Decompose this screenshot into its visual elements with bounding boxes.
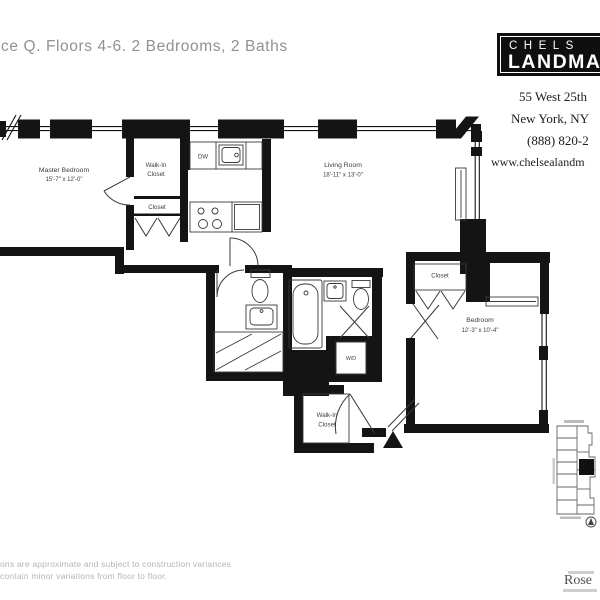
disclaimer-line-2: contain minor variations from floor to f… xyxy=(0,571,167,581)
brand-fineprint-bottom xyxy=(563,589,597,592)
stove-burners xyxy=(198,208,222,229)
refrigerator xyxy=(235,205,260,230)
floor-plan-drawing: Master Bedroom 15'-7" x 12'-0" Walk-In C… xyxy=(0,0,600,600)
room-dims-bedroom: 12'-3" x 10'-4" xyxy=(462,328,499,334)
disclaimer-line-1: ons are approximate and subject to const… xyxy=(0,559,231,569)
key-plan-street-label-top xyxy=(564,420,584,423)
label-walk-in-closet-2b: Closet xyxy=(318,422,336,429)
key-plan-street-label-left xyxy=(553,458,556,484)
key-plan-highlighted-unit xyxy=(579,459,594,475)
label-walk-in-closet-1b: Closet xyxy=(147,171,165,178)
room-dims-living-room: 18'-11" x 13'-0" xyxy=(323,173,363,179)
label-closet-2: Closet xyxy=(431,273,449,280)
key-plan-street-label-bottom xyxy=(560,517,581,520)
label-walk-in-closet-2a: Walk-In xyxy=(317,412,338,419)
brand-rose: Rose xyxy=(564,573,592,589)
label-dishwasher: DW xyxy=(198,155,208,161)
compass-icon xyxy=(586,517,596,527)
room-label-bedroom: Bedroom xyxy=(466,317,494,324)
label-walk-in-closet-1a: Walk-In xyxy=(146,162,167,169)
room-label-living-room: Living Room xyxy=(324,162,362,169)
room-label-master-bedroom: Master Bedroom xyxy=(39,167,90,174)
room-dims-master-bedroom: 15'-7" x 12'-0" xyxy=(46,177,83,183)
bath2-toilet xyxy=(352,281,370,288)
label-washer-dryer: W/D xyxy=(346,356,356,362)
label-closet-1: Closet xyxy=(148,204,166,211)
